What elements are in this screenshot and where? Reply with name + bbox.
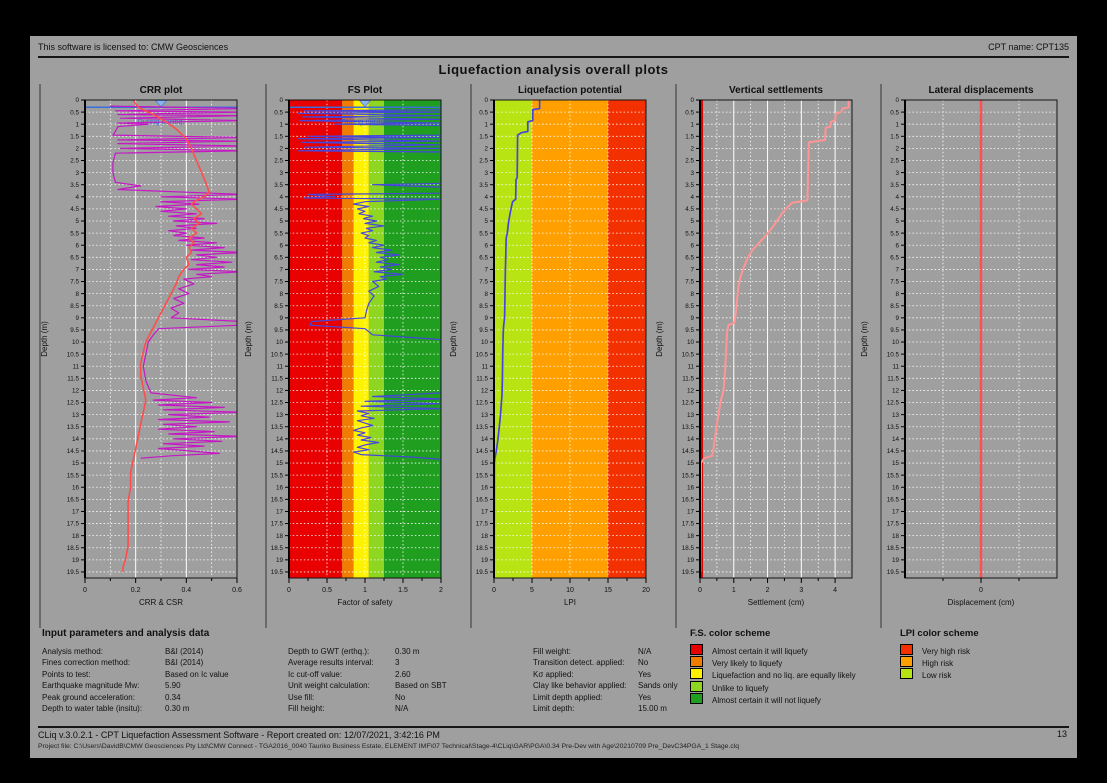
legend-label: Low risk [922,671,951,680]
chart-title: CRR plot [140,85,183,96]
depth-tick-label: 12 [72,388,80,395]
param-value: 0.34 [165,692,181,703]
legend-item: Unlike to liquefy [690,681,856,693]
depth-tick-label: 6.5 [685,255,694,262]
depth-tick-label: 4 [690,194,694,201]
depth-tick-label: 11.5 [271,376,283,383]
depth-tick-label: 8 [75,291,79,298]
param-label: Depth to water table (insitu): [42,703,165,714]
param-value: 2.60 [395,669,411,680]
depth-tick-label: 19.5 [67,569,80,576]
x-tick-label: 0 [83,587,87,594]
depth-tick-label: 8.5 [70,303,79,310]
depth-tick-label: 14 [276,436,284,443]
depth-tick-label: 19 [892,557,900,564]
depth-tick-label: 19 [481,557,489,564]
depth-tick-label: 0 [895,97,899,104]
depth-tick-label: 15.5 [476,472,489,479]
depth-tick-label: 19 [687,557,695,564]
depth-tick-label: 3.5 [890,182,899,189]
depth-tick-label: 7 [279,267,283,274]
depth-tick-label: 17 [687,509,695,516]
depth-tick-label: 11.5 [67,376,79,383]
depth-tick-label: 9.5 [685,327,694,334]
param-value: N/A [395,703,408,714]
depth-tick-label: 11 [276,363,283,370]
depth-tick-label: 9 [484,315,488,322]
depth-tick-label: 5 [895,218,899,225]
chart-title: Vertical settlements [729,85,823,96]
depth-tick-label: 5.5 [685,230,694,237]
depth-tick-label: 11 [481,363,488,370]
depth-tick-label: 4.5 [274,206,283,213]
chart-title: FS Plot [348,85,383,96]
legend-item: Almost certain it will liquefy [690,644,856,656]
param-row: Points to test:Based on Ic value [42,669,229,680]
depth-tick-label: 12 [892,388,900,395]
depth-tick-label: 1 [895,121,899,128]
depth-tick-label: 5.5 [274,230,283,237]
param-label: Earthquake magnitude Mw: [42,680,165,691]
depth-tick-label: 7 [690,267,694,274]
depth-tick-label: 16.5 [476,497,489,504]
depth-tick-label: 3.5 [70,182,79,189]
depth-tick-label: 5 [484,218,488,225]
param-row: Limit depth applied:Yes [533,692,678,703]
depth-tick-label: 1 [75,121,79,128]
depth-tick-label: 0.5 [890,109,899,116]
depth-tick-label: 16 [481,484,489,491]
depth-tick-label: 7.5 [274,279,283,286]
depth-tick-label: 2 [895,146,899,153]
x-tick-label: 3 [799,587,803,594]
param-label: Limit depth: [533,703,638,714]
chart-title: Lateral displacements [928,85,1033,96]
depth-tick-label: 11.5 [682,376,694,383]
param-label: Limit depth applied: [533,692,638,703]
param-value: Sands only [638,680,678,691]
param-value: N/A [638,646,651,657]
param-value: Based on Ic value [165,669,229,680]
depth-tick-label: 14 [687,436,695,443]
x-tick-label: 0 [698,587,702,594]
legend-label: High risk [922,659,953,668]
depth-tick-label: 6.5 [70,255,79,262]
param-value: No [638,657,648,668]
depth-tick-label: 15.5 [67,472,80,479]
legend-label: Almost certain it will not liquefy [712,696,821,705]
depth-tick-label: 16 [72,484,80,491]
depth-tick-label: 7.5 [685,279,694,286]
depth-tick-label: 17.5 [271,521,284,528]
depth-tick-label: 7.5 [70,279,79,286]
depth-tick-label: 7.5 [479,279,488,286]
depth-tick-label: 0.5 [685,109,694,116]
x-axis-title: Settlement (cm) [748,598,805,607]
depth-tick-label: 13.5 [887,424,900,431]
depth-tick-label: 5 [75,218,79,225]
depth-tick-label: 14.5 [67,448,80,455]
param-label: Fill weight: [533,646,638,657]
y-axis-title: Depth (m) [244,321,253,357]
depth-tick-label: 19.5 [271,569,284,576]
x-tick-label: 0 [979,587,983,594]
param-label: Analysis method: [42,646,165,657]
report-page: This software is licensed to: CMW Geosci… [30,36,1077,758]
legend-item: High risk [900,656,979,668]
depth-tick-label: 15.5 [271,472,284,479]
depth-tick-label: 5.5 [70,230,79,237]
depth-tick-label: 6 [690,242,694,249]
param-row: Depth to GWT (erthq.):0.30 m [288,646,447,657]
plot-frame [700,100,852,578]
depth-tick-label: 9 [895,315,899,322]
param-row: Transition detect. applied:No [533,657,678,668]
x-tick-label: 1 [732,587,736,594]
depth-tick-label: 2.5 [685,158,694,165]
depth-tick-label: 15 [72,460,80,467]
legend-item: Liquefaction and no liq. are equally lik… [690,668,856,680]
x-tick-label: 2 [439,587,443,594]
risk-band [289,100,342,578]
depth-tick-label: 1 [484,121,488,128]
depth-tick-label: 11 [72,363,79,370]
depth-tick-label: 13.5 [67,424,80,431]
depth-tick-label: 3 [484,170,488,177]
legend-item: Very high risk [900,644,979,656]
depth-tick-label: 1 [279,121,283,128]
depth-tick-label: 10 [481,339,489,346]
x-tick-label: 20 [642,587,650,594]
depth-tick-label: 3.5 [685,182,694,189]
param-row: Analysis method:B&I (2014) [42,646,229,657]
depth-tick-label: 2 [484,146,488,153]
depth-tick-label: 17.5 [67,521,80,528]
chart-fs-plot: During earthq.00.511.522.533.544.555.566… [244,85,443,607]
legend-label: Liquefaction and no liq. are equally lik… [712,671,856,680]
depth-tick-label: 10.5 [476,351,489,358]
x-tick-label: 15 [604,587,612,594]
legend-label: Very likely to liquefy [712,659,782,668]
depth-tick-label: 6 [279,242,283,249]
depth-tick-label: 10.5 [67,351,80,358]
depth-tick-label: 17 [892,509,900,516]
risk-band [494,100,532,578]
depth-tick-label: 6 [75,242,79,249]
depth-tick-label: 16.5 [887,497,900,504]
depth-tick-label: 15 [687,460,695,467]
param-label: Average results interval: [288,657,395,668]
depth-tick-label: 12 [276,388,284,395]
depth-tick-label: 13.5 [476,424,489,431]
depth-tick-label: 4.5 [890,206,899,213]
depth-tick-label: 12.5 [887,400,900,407]
depth-tick-label: 6 [895,242,899,249]
param-value: B&I (2014) [165,657,203,668]
depth-tick-label: 13.5 [682,424,695,431]
param-row: Limit depth:15.00 m [533,703,678,714]
depth-tick-label: 12.5 [682,400,695,407]
param-label: Ic cut-off value: [288,669,395,680]
depth-tick-label: 16.5 [271,497,284,504]
depth-tick-label: 2.5 [479,158,488,165]
depth-tick-label: 1.5 [890,134,899,141]
x-tick-label: 0.4 [181,587,191,594]
footer-version-line: CLiq v.3.0.2.1 - CPT Liquefaction Assess… [38,730,440,740]
legend-item: Low risk [900,668,979,680]
param-label: Use fill: [288,692,395,703]
depth-tick-label: 2 [75,146,79,153]
depth-tick-label: 0.5 [479,109,488,116]
depth-tick-label: 18 [687,533,695,540]
depth-tick-label: 3 [895,170,899,177]
x-tick-label: 5 [530,587,534,594]
depth-tick-label: 12.5 [271,400,284,407]
legend-title: LPI color scheme [900,628,979,639]
depth-tick-label: 19.5 [887,569,900,576]
depth-tick-label: 11 [892,363,899,370]
depth-tick-label: 16 [276,484,284,491]
depth-tick-label: 5.5 [890,230,899,237]
legend-swatch [690,668,703,679]
x-tick-label: 1 [363,587,367,594]
depth-tick-label: 12.5 [476,400,489,407]
depth-tick-label: 16 [892,484,900,491]
legend-label: Very high risk [922,647,970,656]
depth-tick-label: 19 [72,557,80,564]
y-axis-title: Depth (m) [449,321,458,357]
chart-lateral-displacements: 00.511.522.533.544.555.566.577.588.599.5… [860,85,1057,607]
params-column-1: Analysis method:B&I (2014)Fines correcti… [42,646,229,714]
depth-tick-label: 18.5 [67,545,80,552]
depth-tick-label: 0 [279,97,283,104]
depth-tick-label: 6.5 [274,255,283,262]
water-table-marker-icon [156,101,167,107]
depth-tick-label: 5.5 [479,230,488,237]
depth-tick-label: 12.5 [67,400,80,407]
depth-tick-label: 9.5 [890,327,899,334]
params-column-3: Fill weight:N/ATransition detect. applie… [533,646,678,714]
depth-tick-label: 14 [892,436,900,443]
depth-tick-label: 15.5 [887,472,900,479]
param-value: Based on SBT [395,680,447,691]
depth-tick-label: 18.5 [682,545,695,552]
depth-tick-label: 18.5 [887,545,900,552]
depth-tick-label: 9.5 [274,327,283,334]
lpi-color-scheme-legend: LPI color schemeVery high riskHigh riskL… [900,628,979,681]
depth-tick-label: 17 [72,509,80,516]
param-value: 3 [395,657,399,668]
depth-tick-label: 8 [484,291,488,298]
param-value: B&I (2014) [165,646,203,657]
depth-tick-label: 9 [690,315,694,322]
depth-tick-label: 13 [481,412,489,419]
legend-label: Unlike to liquefy [712,684,768,693]
depth-tick-label: 15 [276,460,284,467]
legend-item: Very likely to liquefy [690,656,856,668]
depth-tick-label: 8.5 [274,303,283,310]
footer-divider [38,726,1069,728]
param-value: Yes [638,669,651,680]
depth-tick-label: 15 [481,460,489,467]
depth-tick-label: 12 [687,388,695,395]
depth-tick-label: 16.5 [67,497,80,504]
depth-tick-label: 8.5 [685,303,694,310]
depth-tick-label: 8.5 [479,303,488,310]
param-row: Depth to water table (insitu):0.30 m [42,703,229,714]
chart-title: Liquefaction potential [518,85,622,96]
x-tick-label: 1.5 [398,587,408,594]
risk-band [369,100,384,578]
depth-tick-label: 14 [481,436,489,443]
depth-tick-label: 10 [276,339,284,346]
param-value: 5.90 [165,680,181,691]
param-value: 15.00 m [638,703,667,714]
depth-tick-label: 1.5 [70,134,79,141]
page-number: 13 [1057,729,1067,739]
depth-tick-label: 3.5 [479,182,488,189]
depth-tick-label: 7 [895,267,899,274]
depth-tick-label: 5 [279,218,283,225]
depth-tick-label: 11.5 [887,376,899,383]
param-row: Average results interval:3 [288,657,447,668]
series-cumulative-settlement [700,100,848,572]
depth-tick-label: 4.5 [479,206,488,213]
legend-label: Almost certain it will liquefy [712,647,808,656]
depth-tick-label: 13 [892,412,900,419]
depth-tick-label: 14.5 [682,448,695,455]
depth-tick-label: 17.5 [887,521,900,528]
depth-tick-label: 18 [276,533,284,540]
depth-tick-label: 19 [276,557,284,564]
depth-tick-label: 0 [75,97,79,104]
depth-tick-label: 2 [690,146,694,153]
depth-tick-label: 9.5 [479,327,488,334]
param-row: Use fill:No [288,692,447,703]
x-tick-label: 2 [766,587,770,594]
depth-tick-label: 3 [75,170,79,177]
depth-tick-label: 4.5 [70,206,79,213]
depth-tick-label: 10 [72,339,80,346]
depth-tick-label: 17 [481,509,489,516]
depth-tick-label: 10 [892,339,900,346]
depth-tick-label: 2.5 [70,158,79,165]
depth-tick-label: 18 [481,533,489,540]
param-row: Kσ applied:Yes [533,669,678,680]
legend-swatch [690,681,703,692]
depth-tick-label: 8 [279,291,283,298]
depth-tick-label: 1.5 [274,134,283,141]
depth-tick-label: 0 [484,97,488,104]
depth-tick-label: 3 [690,170,694,177]
chart-vertical-settlements: 00.511.522.533.544.555.566.577.588.599.5… [655,85,852,607]
depth-tick-label: 11 [687,363,694,370]
depth-tick-label: 1 [690,121,694,128]
depth-tick-label: 17 [276,509,284,516]
param-label: Clay like behavior applied: [533,680,638,691]
legend-swatch [690,656,703,667]
depth-tick-label: 6.5 [890,255,899,262]
depth-tick-label: 19.5 [476,569,489,576]
x-tick-label: 0.5 [322,587,332,594]
depth-tick-label: 4.5 [685,206,694,213]
depth-tick-label: 13 [687,412,695,419]
depth-tick-label: 4 [279,194,283,201]
param-row: Unit weight calculation:Based on SBT [288,680,447,691]
depth-tick-label: 1.5 [479,134,488,141]
depth-tick-label: 3.5 [274,182,283,189]
depth-tick-label: 15.5 [682,472,695,479]
x-axis-title: Displacement (cm) [948,598,1015,607]
x-axis-title: CRR & CSR [139,598,183,607]
depth-tick-label: 8.5 [890,303,899,310]
depth-tick-label: 14 [72,436,80,443]
depth-tick-label: 17.5 [682,521,695,528]
params-title: Input parameters and analysis data [42,628,209,639]
depth-tick-label: 6.5 [479,255,488,262]
param-label: Depth to GWT (erthq.): [288,646,395,657]
depth-tick-label: 18.5 [476,545,489,552]
legend-swatch [690,644,703,655]
depth-tick-label: 0 [690,97,694,104]
depth-tick-label: 0.5 [70,109,79,116]
depth-tick-label: 18 [72,533,80,540]
depth-tick-label: 8 [895,291,899,298]
param-value: No [395,692,405,703]
y-axis-title: Depth (m) [40,321,49,357]
depth-tick-label: 4 [75,194,79,201]
x-tick-label: 0 [492,587,496,594]
legend-swatch [900,644,913,655]
depth-tick-label: 7.5 [890,279,899,286]
depth-tick-label: 14.5 [476,448,489,455]
param-value: Yes [638,692,651,703]
depth-tick-label: 7 [484,267,488,274]
depth-tick-label: 2 [279,146,283,153]
legend-swatch [900,656,913,667]
x-tick-label: 10 [566,587,574,594]
depth-tick-label: 16.5 [682,497,695,504]
params-column-2: Depth to GWT (erthq.):0.30 mAverage resu… [288,646,447,714]
depth-tick-label: 4 [895,194,899,201]
depth-tick-label: 13 [72,412,80,419]
x-tick-label: 0.6 [232,587,242,594]
risk-band [608,100,646,578]
param-row: Earthquake magnitude Mw:5.90 [42,680,229,691]
depth-tick-label: 4 [484,194,488,201]
depth-tick-label: 8 [690,291,694,298]
depth-tick-label: 13.5 [271,424,284,431]
depth-tick-label: 2.5 [274,158,283,165]
param-row: Peak ground acceleration:0.34 [42,692,229,703]
depth-tick-label: 3 [279,170,283,177]
depth-tick-label: 2.5 [890,158,899,165]
chart-liquefaction-potential: 00.511.522.533.544.555.566.577.588.599.5… [449,85,650,607]
depth-tick-label: 9 [75,315,79,322]
x-tick-label: 0 [287,587,291,594]
fs-color-scheme-legend: F.S. color schemeAlmost certain it will … [690,628,856,705]
x-tick-label: 4 [833,587,837,594]
depth-tick-label: 15 [892,460,900,467]
depth-tick-label: 10.5 [887,351,900,358]
depth-tick-label: 9.5 [70,327,79,334]
legend-item: Almost certain it will not liquefy [690,693,856,705]
depth-tick-label: 10.5 [682,351,695,358]
depth-tick-label: 13 [276,412,284,419]
param-label: Points to test: [42,669,165,680]
depth-tick-label: 18 [892,533,900,540]
chart-crr-plot: During earthq.00.511.522.533.544.555.566… [40,85,242,607]
